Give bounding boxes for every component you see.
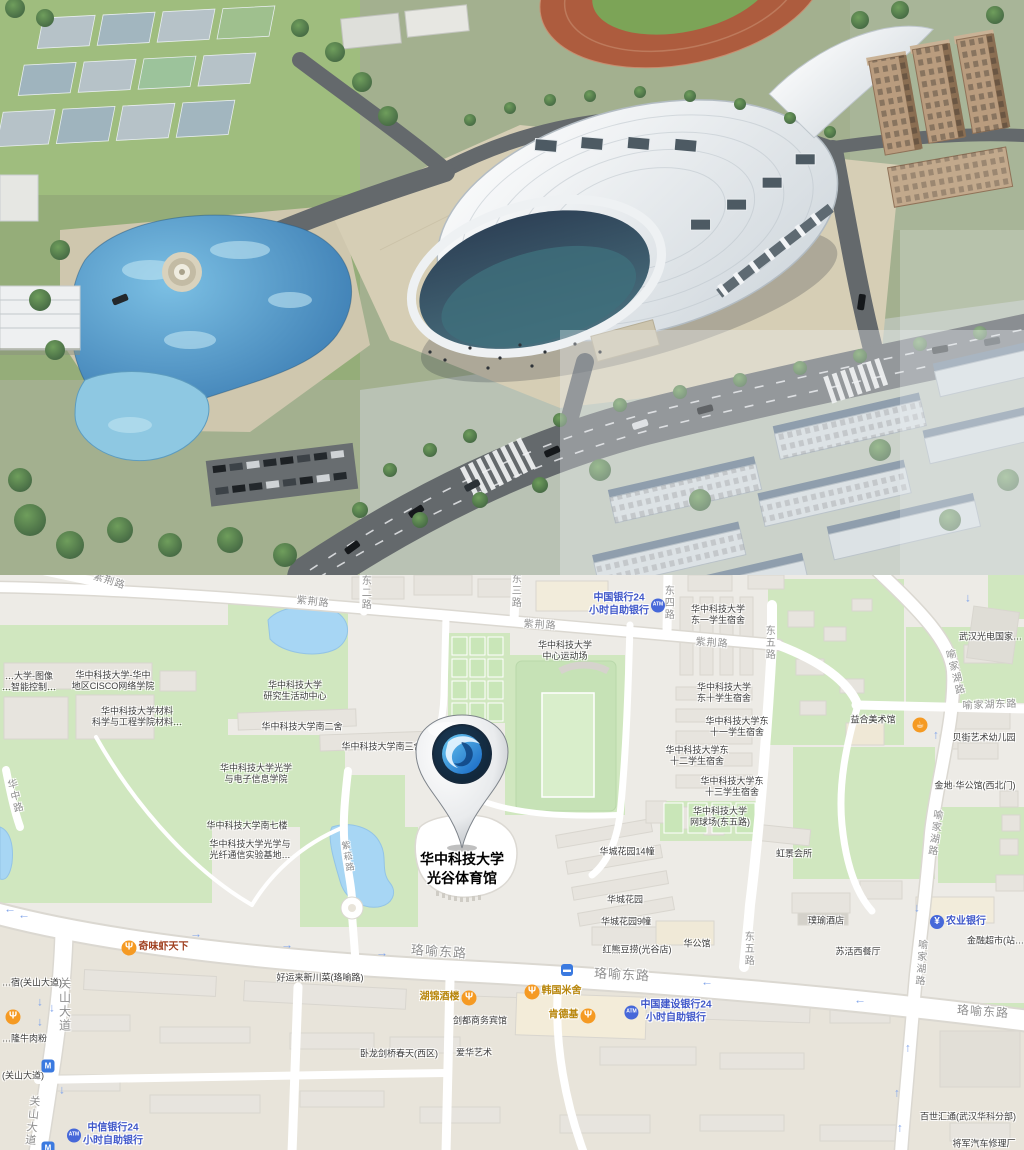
map-label-niuroufen[interactable]: …隆牛肉粉 xyxy=(2,1033,47,1044)
map-label-metro-1[interactable]: M xyxy=(42,1060,55,1073)
aerial-rendering xyxy=(0,0,1024,575)
label-text: 华中科技大学研究生活动中心 xyxy=(263,680,326,703)
atm-icon[interactable]: ATM xyxy=(624,1005,638,1019)
fork-icon[interactable]: Ψ xyxy=(122,941,137,956)
label-text: ↑ xyxy=(897,1121,903,1136)
label-text: 华中科技大学网球场(东五路) xyxy=(690,806,750,829)
one-way-arrow-arr-8: → xyxy=(281,938,293,953)
fork-icon[interactable]: Ψ xyxy=(581,1009,596,1024)
label-text: 紫荆路 xyxy=(523,619,557,634)
label-text: → xyxy=(190,927,202,942)
one-way-arrow-arr-4: ↑ xyxy=(905,1041,911,1056)
label-text: 卧龙剑桥春天(西区) xyxy=(360,1048,438,1059)
label-text: 武汉光电国家… xyxy=(959,631,1022,642)
map-label-beijie-kg[interactable]: 贝街艺术幼儿园 xyxy=(952,732,1015,743)
map-label-hust-nan7[interactable]: 华中科技大学南七楼 xyxy=(206,820,287,831)
one-way-arrow-arr-12: ← xyxy=(4,902,16,917)
map-label-hust-grad[interactable]: 华中科技大学研究生活动中心 xyxy=(263,680,326,703)
one-way-arrow-arr-14: ↓ xyxy=(37,995,43,1010)
label-text: ↓ xyxy=(914,901,920,916)
label-text: 金融超市(站… xyxy=(967,935,1024,946)
map-label-qiwei[interactable]: Ψ奇味虾天下 xyxy=(122,941,189,956)
label-text: ↓ xyxy=(965,591,971,606)
road-label-dong2: 东二路 xyxy=(358,575,371,611)
label-text: 虹景会所 xyxy=(776,848,812,859)
one-way-arrow-arr-5: ↑ xyxy=(894,1086,900,1101)
label-text: 东二路 xyxy=(358,575,371,611)
label-text: 农业银行 xyxy=(946,916,986,929)
label-text: 中国银行24小时自助银行 xyxy=(589,593,649,618)
pin-graphic xyxy=(410,712,514,852)
label-text: 剑都商务宾馆 xyxy=(453,1015,507,1026)
label-text: 华中科技大学东一学生宿舍 xyxy=(691,604,745,627)
map-label-citic[interactable]: ATM中信银行24小时自助银行 xyxy=(67,1123,143,1148)
map-label-haoyunlai[interactable]: 好运来新川菜(珞喻路) xyxy=(277,972,364,983)
label-text: 红熊豆捞(光谷店) xyxy=(603,944,672,955)
label-text: …大学-图像…智能控制… xyxy=(2,671,56,694)
one-way-arrow-arr-3: ↓ xyxy=(914,901,920,916)
map-label-huagongguan[interactable]: 华公馆 xyxy=(683,938,710,949)
label-text: 珞喻东路 xyxy=(594,965,651,984)
map-label-puyu-hotel[interactable]: 璞瑜酒店 xyxy=(808,915,844,926)
one-way-arrow-arr-7: → xyxy=(190,927,202,942)
fountain-plaza xyxy=(162,252,202,292)
label-text: 华中科技大学东十一学生宿舍 xyxy=(705,716,768,739)
label-text: 苏活西餐厅 xyxy=(835,946,880,957)
label-text: 益合美术馆 xyxy=(850,714,895,725)
metro-icon[interactable]: M xyxy=(42,1142,55,1150)
label-text: 将军汽车修理厂 xyxy=(952,1138,1015,1149)
label-text: ↓ xyxy=(37,1015,43,1030)
one-way-arrow-arr-17: ↓ xyxy=(59,1083,65,1098)
label-text: 华城花园9幢 xyxy=(601,916,651,927)
map-label-huacheng[interactable]: 华城花园 xyxy=(607,894,643,905)
map-label-hust-nan2[interactable]: 华中科技大学南二舍 xyxy=(261,721,342,732)
location-pin[interactable] xyxy=(410,712,514,857)
one-way-arrow-arr-13: ← xyxy=(18,908,30,923)
label-text: 华中科技大学东十学生宿舍 xyxy=(697,682,751,705)
label-text: 百世汇通(武汉华科分部) xyxy=(920,1111,1016,1122)
label-text: 华中科技大学光学与电子信息学院 xyxy=(220,763,292,786)
label-text: 璞瑜酒店 xyxy=(808,915,844,926)
atm-icon[interactable]: ATM xyxy=(67,1128,81,1142)
map-label-hust-dong11[interactable]: 华中科技大学东十一学生宿舍 xyxy=(705,716,768,739)
one-way-arrow-arr-15: ↓ xyxy=(49,1001,55,1016)
fork-icon[interactable]: Ψ xyxy=(6,1010,21,1025)
map-panel[interactable]: 紫荆路紫荆路紫荆路紫荆路东二路东三路东四路东五路东五路喻家湖路喻家湖路喻家湖路喻… xyxy=(0,575,1024,1150)
label-text: 喻家湖东路 xyxy=(962,699,1017,713)
label-text: ← xyxy=(18,908,30,923)
map-label-huacheng9[interactable]: 华城花园9幢 xyxy=(601,916,651,927)
label-text: 中信银行24小时自助银行 xyxy=(83,1123,143,1148)
atm-icon[interactable]: ATM xyxy=(651,598,665,612)
one-way-arrow-arr-10: ← xyxy=(701,975,713,990)
map-label-boc[interactable]: 中国银行24小时自助银行ATM xyxy=(589,593,665,618)
cup-icon[interactable]: ☕ xyxy=(913,718,928,733)
map-base xyxy=(0,575,1024,1150)
map-label-finance-mart[interactable]: 金融超市(站… xyxy=(967,935,1024,946)
label-text: 华中科技大学-华中地区CISCO网络学院 xyxy=(72,670,155,693)
label-text: …宿(关山大道) xyxy=(2,977,62,988)
label-text: → xyxy=(281,938,293,953)
label-text: 东三路 xyxy=(508,575,521,609)
pin-label-line2: 光谷体育馆 xyxy=(420,869,504,888)
map-label-hust-material[interactable]: 华中科技大学材料科学与工程学院材料… xyxy=(92,706,182,729)
label-text: 好运来新川菜(珞喻路) xyxy=(277,972,364,983)
map-label-hanguo[interactable]: Ψ韩国米舍 xyxy=(525,985,582,1000)
map-label-hust-dong1[interactable]: 华中科技大学东一学生宿舍 xyxy=(691,604,745,627)
one-way-arrow-arr-6: ↑ xyxy=(897,1121,903,1136)
fork-icon[interactable]: Ψ xyxy=(462,991,477,1006)
label-text: ↑ xyxy=(905,1041,911,1056)
map-label-hust-tennis[interactable]: 华中科技大学网球场(东五路) xyxy=(690,806,750,829)
bus-icon[interactable]: ▬ xyxy=(561,964,573,976)
map-label-huacheng14[interactable]: 华城花园14幢 xyxy=(599,846,654,857)
road-label-zijing-4: 紫荆路 xyxy=(695,637,729,652)
map-label-guanshan-p[interactable]: (关山大道) xyxy=(2,1070,44,1081)
map-label-abc-bank[interactable]: ¥农业银行 xyxy=(930,915,986,929)
map-label-jiangjun[interactable]: 将军汽车修理厂 xyxy=(952,1138,1015,1149)
label-text: ← xyxy=(701,975,713,990)
label-text: (关山大道) xyxy=(2,1070,44,1081)
fork-icon[interactable]: Ψ xyxy=(525,985,540,1000)
map-label-hust-dong10[interactable]: 华中科技大学东十学生宿舍 xyxy=(697,682,751,705)
label-text: 华中科技大学材料科学与工程学院材料… xyxy=(92,706,182,729)
map-label-baishi[interactable]: 百世汇通(武汉华科分部) xyxy=(920,1111,1016,1122)
label-text: 奇味虾天下 xyxy=(139,942,189,955)
map-label-hust-cisco[interactable]: 华中科技大学-华中地区CISCO网络学院 xyxy=(72,670,155,693)
label-text: ↓ xyxy=(59,1083,65,1098)
pin-label: 华中科技大学 光谷体育馆 xyxy=(420,850,504,888)
map-label-hust-field[interactable]: 华中科技大学中心运动场 xyxy=(538,640,592,663)
label-text: ↓ xyxy=(49,1001,55,1016)
label-text: 华中科技大学南二舍 xyxy=(261,721,342,732)
map-label-hujin[interactable]: 湖锦酒楼Ψ xyxy=(420,991,477,1006)
map-label-bus-stop[interactable]: ▬ xyxy=(561,964,573,976)
map-label-hongxiong[interactable]: 红熊豆捞(光谷店) xyxy=(603,944,672,955)
one-way-arrow-arr-9: → xyxy=(376,946,388,961)
road-label-dong3: 东三路 xyxy=(508,575,521,609)
road-label-dong5-n: 东五路 xyxy=(762,625,775,661)
label-text: 湖锦酒楼 xyxy=(420,992,460,1005)
metro-icon[interactable]: M xyxy=(42,1060,55,1073)
map-label-hust-dong12[interactable]: 华中科技大学东十二学生宿舍 xyxy=(665,745,728,768)
map-label-hongjing[interactable]: 虹景会所 xyxy=(776,848,812,859)
map-label-hust-dong13[interactable]: 华中科技大学东十三学生宿舍 xyxy=(700,776,763,799)
label-text: 华城花园 xyxy=(607,894,643,905)
label-text: 爱华艺术 xyxy=(456,1047,492,1058)
one-way-arrow-arr-2: ↑ xyxy=(933,728,939,743)
map-label-hust-fiber[interactable]: 华中科技大学光学与光纤通信实验基地… xyxy=(209,839,290,862)
label-text: 中国建设银行24小时自助银行 xyxy=(640,1000,711,1025)
map-label-yihe-poi[interactable]: ☕ xyxy=(913,718,928,733)
pin-label-line1: 华中科技大学 xyxy=(420,850,504,869)
road-label-zijing-3: 紫荆路 xyxy=(523,619,557,634)
screenshot: 紫荆路紫荆路紫荆路紫荆路东二路东三路东四路东五路东五路喻家湖路喻家湖路喻家湖路喻… xyxy=(0,0,1024,1150)
map-label-suhuo[interactable]: 苏活西餐厅 xyxy=(835,946,880,957)
label-text: …隆牛肉粉 xyxy=(2,1033,47,1044)
label-text: 华公馆 xyxy=(683,938,710,949)
label-text: ← xyxy=(854,993,866,1008)
sports-field xyxy=(516,661,616,811)
label-text: 华中科技大学南七楼 xyxy=(206,820,287,831)
label-text: 肯德基 xyxy=(549,1010,579,1023)
label-text: 华中科技大学东十三学生宿舍 xyxy=(700,776,763,799)
label-text: 喻家湖路 xyxy=(911,939,927,988)
map-label-wuhan-optoel[interactable]: 武汉光电国家… xyxy=(959,631,1022,642)
map-label-su-dorm[interactable]: …宿(关山大道) xyxy=(2,977,62,988)
road-label-luoyu-2: 珞喻东路 xyxy=(594,965,651,984)
label-text: 华中科技大学中心运动场 xyxy=(538,640,592,663)
map-label-food-edge[interactable]: Ψ xyxy=(6,1010,21,1025)
label-text: 东五路 xyxy=(762,625,775,661)
label-text: → xyxy=(376,946,388,961)
map-label-hust-optics[interactable]: 华中科技大学光学与电子信息学院 xyxy=(220,763,292,786)
map-label-metro-2[interactable]: M xyxy=(42,1142,55,1150)
map-label-hust-image[interactable]: …大学-图像…智能控制… xyxy=(2,671,56,694)
label-text: 华中科技大学光学与光纤通信实验基地… xyxy=(209,839,290,862)
map-label-jindi[interactable]: 金地·华公馆(西北门) xyxy=(935,780,1016,791)
map-label-wolong[interactable]: 卧龙剑桥春天(西区) xyxy=(360,1048,438,1059)
label-text: 华城花园14幢 xyxy=(599,846,654,857)
map-label-yihe-gallery[interactable]: 益合美术馆 xyxy=(850,714,895,725)
label-text: 金地·华公馆(西北门) xyxy=(935,780,1016,791)
one-way-arrow-arr-16: ↓ xyxy=(37,1015,43,1030)
label-text: ↑ xyxy=(933,728,939,743)
label-text: 东五路 xyxy=(741,931,754,967)
road-label-yujiahu-dong: 喻家湖东路 xyxy=(962,699,1017,713)
map-label-ccb[interactable]: ATM中国建设银行24小时自助银行 xyxy=(624,1000,711,1025)
road-label-yujiahu-3: 喻家湖路 xyxy=(911,939,927,988)
road-label-dong5-s: 东五路 xyxy=(741,931,754,967)
label-text: 贝街艺术幼儿园 xyxy=(952,732,1015,743)
map-label-aihua[interactable]: 爱华艺术 xyxy=(456,1047,492,1058)
label-text: ↓ xyxy=(37,995,43,1010)
one-way-arrow-arr-1: ↓ xyxy=(965,591,971,606)
one-way-arrow-arr-11: ← xyxy=(854,993,866,1008)
label-text: ↑ xyxy=(894,1086,900,1101)
label-text: ← xyxy=(4,902,16,917)
label-text: 华中科技大学东十二学生宿舍 xyxy=(665,745,728,768)
label-text: 紫荆路 xyxy=(695,637,729,652)
label-text: 韩国米舍 xyxy=(542,986,582,999)
yuan-icon[interactable]: ¥ xyxy=(930,915,944,929)
map-label-jiandu[interactable]: 剑都商务宾馆 xyxy=(453,1015,507,1026)
map-label-kfc[interactable]: 肯德基Ψ xyxy=(549,1009,596,1024)
